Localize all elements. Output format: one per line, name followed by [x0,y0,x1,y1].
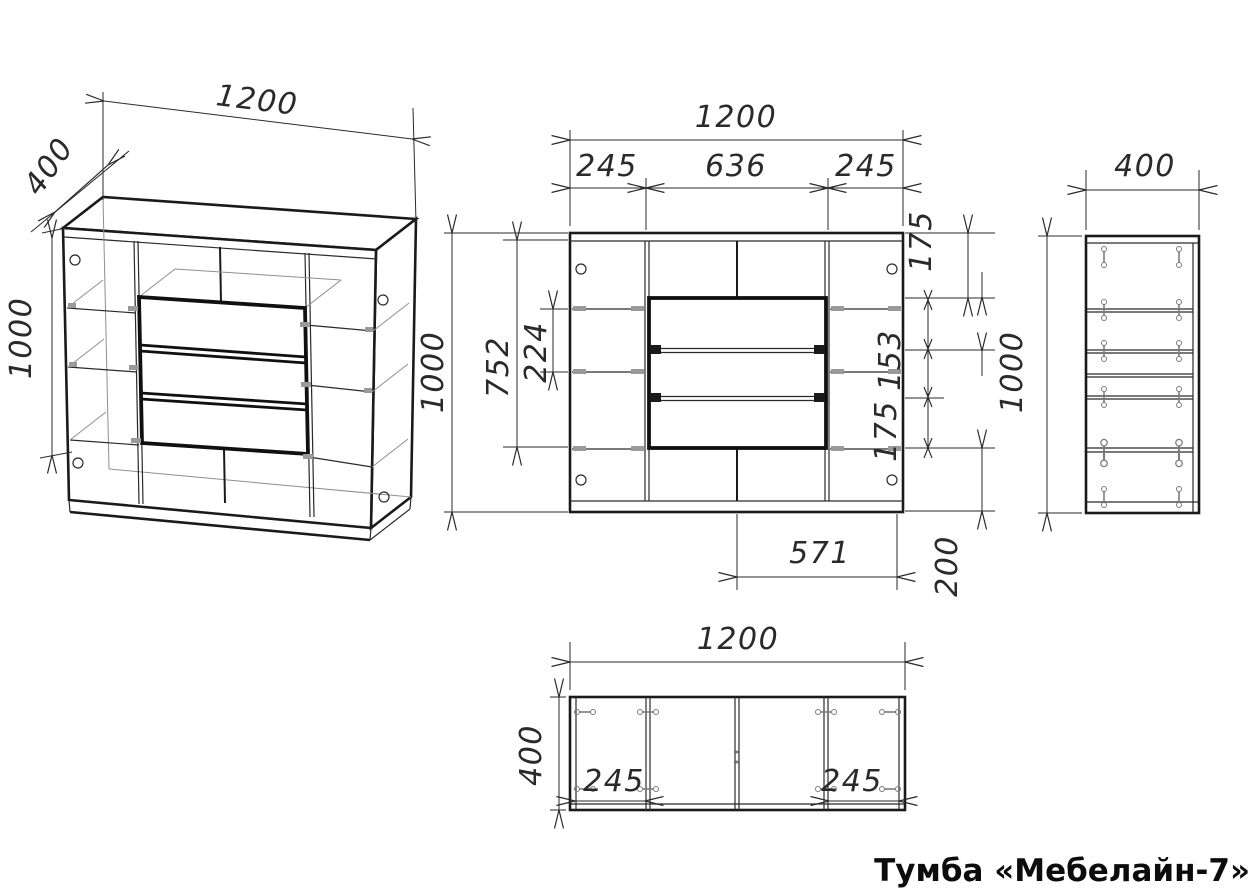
front-dim-bottom-gap: 200 [930,535,965,597]
plan-dim-right-section: 245 [821,764,883,799]
iso-dim-depth: 400 [17,131,81,202]
side-dim-depth: 400 [1114,149,1176,184]
front-dim-width: 1200 [695,100,777,135]
front-view: 1200 245 636 245 1000 752 224 175 [416,100,995,597]
isometric-view: 1200 400 1000 [4,78,416,540]
top-plan-view: 1200 400 245 245 [514,622,905,810]
side-view: 400 1000 [995,149,1199,513]
blueprint-page: 1200 400 1000 [0,0,1260,892]
front-dim-drawer-gap-lower: 175 [869,400,904,462]
iso-dim-height: 1000 [4,297,39,379]
front-dim-inner-height: 752 [481,336,516,398]
front-dim-right-section: 245 [835,149,897,184]
drawer-runner-icon [650,345,661,354]
front-dim-center-section: 636 [705,149,767,184]
front-dim-height: 1000 [416,331,451,413]
plan-dim-width: 1200 [697,622,779,657]
drawer-runner-icon [650,393,661,402]
front-dim-shelf-gap: 224 [519,321,554,383]
page-title: Тумба «Мебелайн-7» [874,853,1250,889]
front-dim-top-gap: 175 [904,210,939,272]
iso-side-face [371,219,416,528]
plan-dim-depth: 400 [514,724,549,786]
drawer-runner-icon [814,393,825,402]
front-dim-left-section: 245 [576,149,638,184]
front-dim-drawer-gap-upper: 153 [873,329,908,391]
iso-drawer-box [139,297,308,454]
front-dim-drawer-width: 571 [789,536,851,571]
side-dim-height: 1000 [995,331,1030,413]
front-drawer-box [649,298,826,448]
plan-dim-left-section: 245 [583,764,645,799]
drawer-runner-icon [814,345,825,354]
drawing-canvas: 1200 400 1000 [0,0,1260,892]
